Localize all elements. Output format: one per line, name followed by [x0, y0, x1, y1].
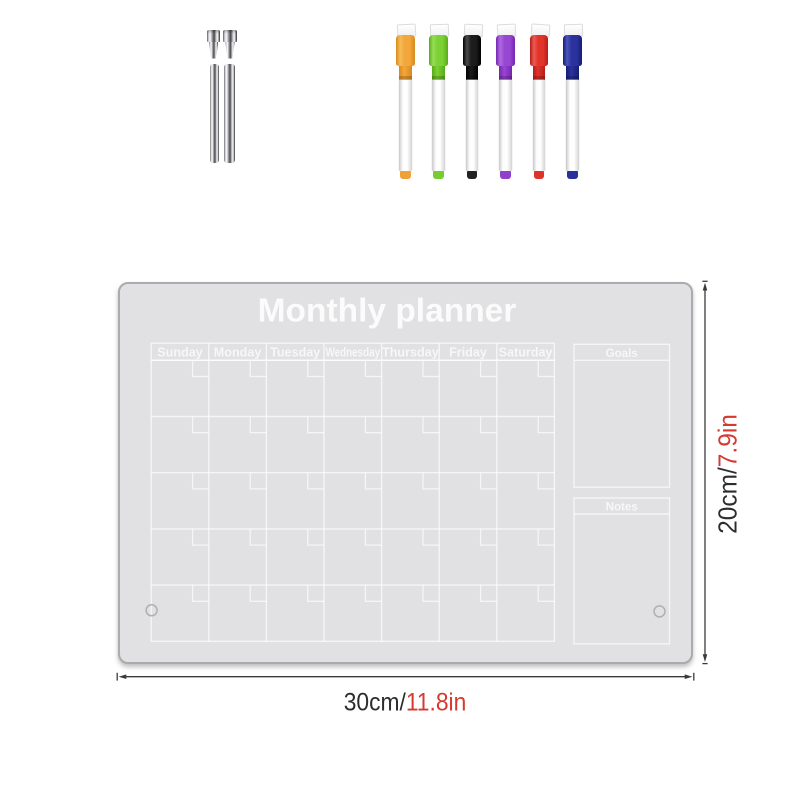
svg-text:20cm/7.9in: 20cm/7.9in	[714, 414, 743, 534]
svg-text:30cm/11.8in: 30cm/11.8in	[344, 689, 467, 717]
